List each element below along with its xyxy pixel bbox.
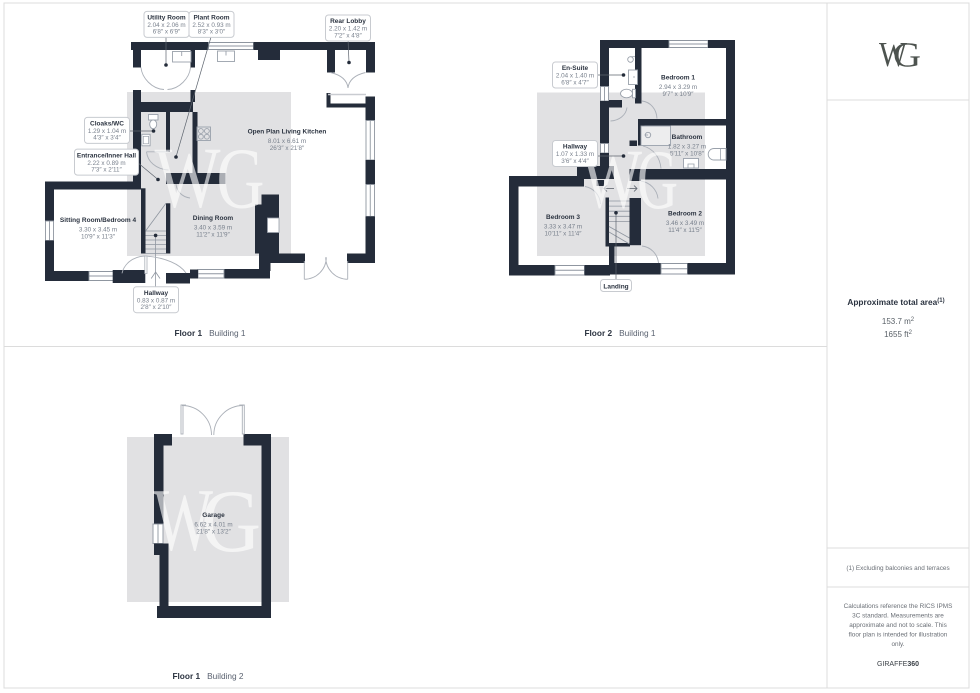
svg-text:Bathroom: Bathroom	[672, 134, 703, 141]
svg-text:3C standard. Measurements are: 3C standard. Measurements are	[852, 613, 944, 620]
svg-text:Cloaks/WC: Cloaks/WC	[90, 121, 124, 128]
svg-text:floor plan is intended for ill: floor plan is intended for illustration	[849, 632, 948, 639]
svg-text:Floor 2Building 1: Floor 2Building 1	[584, 328, 655, 338]
svg-text:Hallway: Hallway	[144, 290, 169, 297]
svg-text:6′8″ x 4′7″: 6′8″ x 4′7″	[561, 79, 589, 86]
svg-text:26′3″ x 21′8″: 26′3″ x 21′8″	[270, 145, 305, 152]
svg-text:7′2″ x 4′8″: 7′2″ x 4′8″	[334, 32, 362, 39]
svg-text:G: G	[893, 36, 921, 75]
svg-text:Dining Room: Dining Room	[193, 215, 234, 222]
svg-text:153.7 m2: 153.7 m2	[882, 317, 915, 326]
svg-text:10′11″ x 11′4″: 10′11″ x 11′4″	[544, 230, 582, 237]
svg-text:10′9″ x 11′3″: 10′9″ x 11′3″	[81, 233, 116, 240]
svg-text:Garage: Garage	[202, 512, 225, 519]
svg-text:Floor 1Building 1: Floor 1Building 1	[174, 328, 245, 338]
svg-text:only.: only.	[891, 641, 904, 648]
svg-text:8′3″ x 3′0″: 8′3″ x 3′0″	[198, 29, 226, 36]
svg-text:Utility Room: Utility Room	[147, 15, 185, 22]
svg-text:2′8″ x 2′10″: 2′8″ x 2′10″	[141, 304, 173, 311]
svg-text:Calculations reference the RIC: Calculations reference the RICS IPMS	[844, 603, 953, 610]
svg-text:Sitting Room/Bedroom 4: Sitting Room/Bedroom 4	[60, 217, 137, 224]
svg-text:Hallway: Hallway	[563, 144, 588, 151]
svg-text:6′8″ x 6′9″: 6′8″ x 6′9″	[153, 29, 181, 36]
svg-text:(1) Excluding balconies and te: (1) Excluding balconies and terraces	[846, 565, 949, 572]
svg-text:W: W	[155, 129, 221, 226]
svg-text:Open Plan Living Kitchen: Open Plan Living Kitchen	[248, 129, 327, 136]
svg-text:5′11″ x 10′8″: 5′11″ x 10′8″	[670, 150, 705, 157]
svg-text:Landing: Landing	[603, 284, 628, 291]
svg-text:Plant Room: Plant Room	[193, 15, 229, 22]
svg-text:Floor 1Building 2: Floor 1Building 2	[172, 671, 243, 681]
svg-text:Rear Lobby: Rear Lobby	[330, 18, 366, 25]
svg-text:4′3″ x 3′4″: 4′3″ x 3′4″	[93, 135, 121, 142]
svg-text:3′6″ x 4′4″: 3′6″ x 4′4″	[561, 158, 589, 165]
svg-text:Bedroom 3: Bedroom 3	[546, 214, 580, 221]
svg-text:21′8″ x 13′2″: 21′8″ x 13′2″	[196, 528, 231, 535]
svg-text:11′4″ x 11′5″: 11′4″ x 11′5″	[668, 227, 702, 234]
svg-text:Entrance/Inner Hall: Entrance/Inner Hall	[77, 152, 136, 159]
svg-text:approximate and not to scale.: approximate and not to scale. This	[849, 622, 947, 629]
svg-text:GIRAFFE360: GIRAFFE360	[877, 661, 919, 668]
svg-text:Bedroom 2: Bedroom 2	[668, 211, 702, 218]
svg-text:7′3″ x 2′11″: 7′3″ x 2′11″	[91, 166, 122, 173]
svg-text:En-Suite: En-Suite	[562, 65, 589, 72]
svg-text:Approximate total area(1): Approximate total area(1)	[847, 297, 944, 307]
svg-text:Bedroom 1: Bedroom 1	[661, 75, 695, 82]
svg-text:1655 ft2: 1655 ft2	[884, 330, 912, 339]
svg-text:11′2″ x 11′9″: 11′2″ x 11′9″	[196, 231, 230, 238]
svg-text:G: G	[217, 130, 265, 227]
svg-text:9′7″ x 10′9″: 9′7″ x 10′9″	[663, 91, 695, 98]
